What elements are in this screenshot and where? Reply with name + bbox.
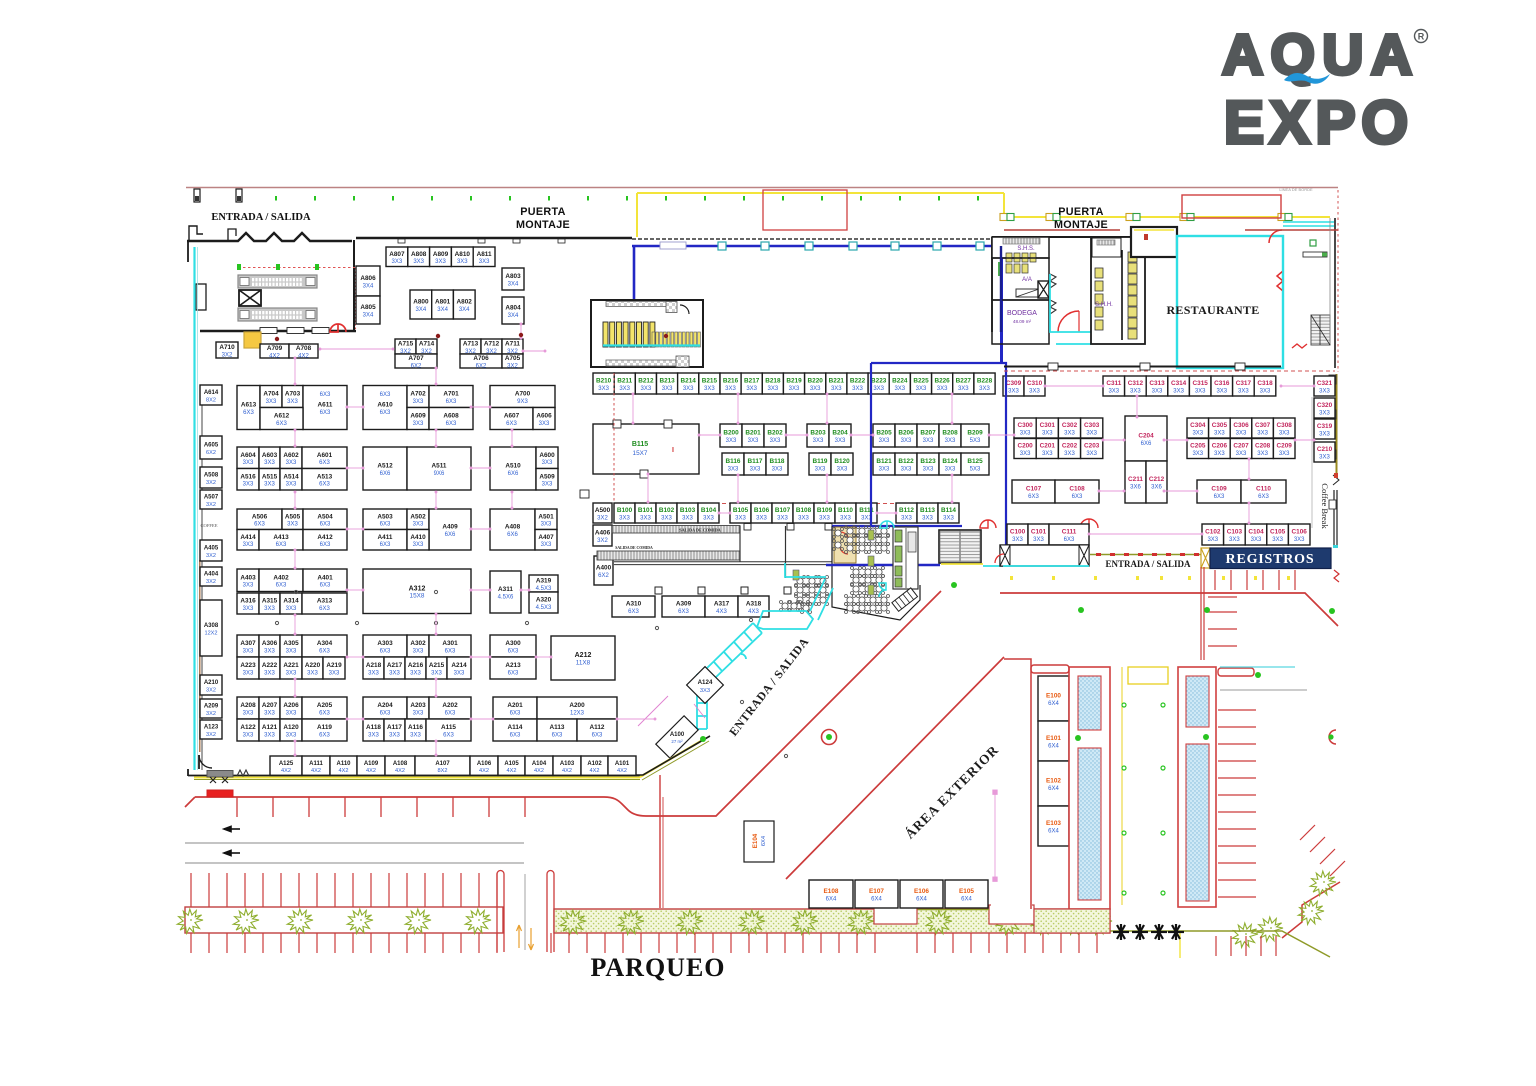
svg-text:C108: C108: [1069, 486, 1085, 493]
svg-text:15X8: 15X8: [410, 593, 425, 600]
svg-text:6X3: 6X3: [592, 732, 603, 738]
svg-text:3X3: 3X3: [852, 386, 863, 392]
svg-text:A209: A209: [204, 704, 219, 710]
svg-text:A601: A601: [317, 452, 333, 459]
svg-text:A206: A206: [283, 702, 299, 709]
svg-text:4.5X3: 4.5X3: [536, 586, 552, 592]
svg-text:3X3: 3X3: [815, 466, 826, 472]
svg-text:3X3: 3X3: [1130, 388, 1141, 394]
svg-text:B216: B216: [723, 378, 739, 385]
svg-text:A507: A507: [204, 495, 219, 501]
svg-text:A707: A707: [408, 355, 424, 362]
svg-text:6X3: 6X3: [552, 732, 563, 738]
svg-text:6X4: 6X4: [916, 896, 927, 902]
svg-text:A614: A614: [204, 390, 219, 396]
svg-text:3X3: 3X3: [368, 670, 379, 676]
svg-text:3X3: 3X3: [750, 466, 761, 472]
svg-text:A613: A613: [241, 402, 257, 409]
svg-text:B204: B204: [832, 430, 848, 437]
svg-text:3X3: 3X3: [1086, 451, 1097, 457]
svg-text:6X6: 6X6: [445, 532, 456, 538]
svg-text:A125: A125: [279, 761, 294, 767]
svg-text:27 m²: 27 m²: [671, 739, 683, 744]
svg-text:B106: B106: [754, 507, 770, 514]
svg-text:E102: E102: [1046, 778, 1061, 785]
svg-text:8X2: 8X2: [438, 768, 448, 774]
svg-text:PARQUEO: PARQUEO: [590, 953, 725, 982]
svg-text:B118: B118: [770, 458, 785, 465]
svg-text:A713: A713: [463, 341, 479, 348]
svg-text:A316: A316: [240, 598, 256, 605]
svg-text:A306: A306: [262, 640, 278, 647]
svg-text:6X3: 6X3: [319, 648, 330, 654]
svg-text:B114: B114: [941, 507, 956, 514]
svg-text:C200: C200: [1017, 443, 1033, 450]
svg-text:C304: C304: [1190, 422, 1206, 429]
svg-text:6X3: 6X3: [276, 583, 287, 589]
svg-text:B115: B115: [632, 441, 648, 448]
svg-text:A407: A407: [538, 534, 554, 541]
svg-text:3X3: 3X3: [410, 732, 421, 738]
svg-text:3X3: 3X3: [728, 466, 739, 472]
svg-text:3X3: 3X3: [879, 466, 890, 472]
svg-text:A501: A501: [538, 514, 554, 521]
svg-text:C310: C310: [1027, 380, 1043, 387]
svg-text:SALIDA DE COMIDA: SALIDA DE COMIDA: [615, 546, 653, 550]
svg-text:3X3: 3X3: [945, 438, 956, 444]
svg-text:3X3: 3X3: [943, 515, 954, 521]
svg-text:A508: A508: [204, 473, 219, 479]
svg-text:A102: A102: [587, 761, 602, 767]
svg-text:A301: A301: [442, 640, 458, 647]
svg-text:A703: A703: [285, 391, 301, 398]
svg-text:5X3: 5X3: [970, 466, 981, 472]
svg-text:B124: B124: [942, 458, 958, 465]
svg-text:3X3: 3X3: [243, 710, 254, 716]
svg-text:6X3: 6X3: [276, 421, 287, 427]
svg-text:3X3: 3X3: [264, 732, 275, 738]
svg-text:A602: A602: [283, 452, 299, 459]
svg-text:A603: A603: [262, 452, 278, 459]
svg-text:3X3: 3X3: [1042, 451, 1053, 457]
svg-text:3X2: 3X2: [206, 711, 216, 717]
svg-text:B116: B116: [726, 458, 741, 465]
svg-text:3X3: 3X3: [813, 438, 824, 444]
svg-text:C312: C312: [1128, 380, 1144, 387]
svg-text:3X3: 3X3: [789, 386, 800, 392]
svg-text:12X3: 12X3: [570, 710, 585, 716]
svg-text:C110: C110: [1256, 486, 1271, 493]
svg-text:A221: A221: [283, 662, 299, 669]
svg-text:6X3: 6X3: [446, 399, 457, 405]
svg-text:B200: B200: [723, 430, 739, 437]
svg-text:6X3: 6X3: [380, 392, 391, 398]
svg-text:B100: B100: [617, 507, 633, 514]
svg-text:B202: B202: [767, 430, 783, 437]
svg-text:3X3: 3X3: [1195, 388, 1206, 394]
svg-text:C207: C207: [1233, 443, 1249, 450]
svg-text:C302: C302: [1062, 422, 1078, 429]
svg-text:3X3: 3X3: [1192, 451, 1203, 457]
svg-text:A808: A808: [411, 251, 427, 258]
svg-text:A807: A807: [389, 251, 405, 258]
svg-text:C203: C203: [1084, 443, 1100, 450]
svg-text:A107: A107: [435, 761, 450, 767]
svg-text:A124: A124: [698, 679, 713, 686]
svg-text:6X4: 6X4: [761, 835, 767, 846]
svg-text:A205: A205: [317, 702, 333, 709]
svg-text:4.5X6: 4.5X6: [498, 594, 514, 600]
svg-text:B101: B101: [638, 507, 654, 514]
svg-text:A802: A802: [457, 299, 473, 306]
svg-text:6X3: 6X3: [508, 670, 519, 676]
svg-text:3X3: 3X3: [541, 522, 552, 528]
svg-text:A705: A705: [505, 355, 521, 362]
svg-text:3X3: 3X3: [1029, 388, 1040, 394]
svg-text:3X3: 3X3: [413, 542, 424, 548]
svg-text:A513: A513: [317, 473, 333, 480]
svg-text:3X3: 3X3: [264, 670, 275, 676]
svg-text:A413: A413: [273, 534, 289, 541]
svg-text:A704: A704: [263, 391, 279, 398]
svg-text:8X2: 8X2: [206, 397, 216, 403]
svg-text:A509: A509: [539, 473, 555, 480]
svg-text:C319: C319: [1317, 423, 1333, 430]
svg-text:A811: A811: [477, 251, 492, 258]
svg-text:3X3: 3X3: [1152, 388, 1163, 394]
svg-text:6X3: 6X3: [380, 410, 391, 416]
svg-text:3X3: 3X3: [772, 466, 783, 472]
svg-text:A606: A606: [536, 413, 552, 420]
svg-text:B109: B109: [817, 507, 833, 514]
svg-text:6X4: 6X4: [1048, 786, 1059, 792]
svg-text:4.5X3: 4.5X3: [536, 605, 552, 611]
svg-text:3X3: 3X3: [243, 583, 254, 589]
svg-text:B120: B120: [834, 458, 850, 465]
svg-text:3X3: 3X3: [1236, 430, 1247, 436]
svg-text:3X3: 3X3: [945, 466, 956, 472]
svg-text:A220: A220: [305, 662, 321, 669]
svg-text:A506: A506: [252, 514, 268, 521]
svg-text:3X3: 3X3: [243, 648, 254, 654]
svg-text:A203: A203: [410, 702, 426, 709]
svg-text:B220: B220: [808, 378, 824, 385]
svg-text:A213: A213: [505, 662, 521, 669]
svg-text:6X3: 6X3: [445, 648, 456, 654]
svg-text:A214: A214: [451, 662, 467, 669]
svg-text:A514: A514: [283, 473, 299, 480]
svg-text:C316: C316: [1214, 380, 1230, 387]
svg-text:6X4: 6X4: [1048, 701, 1059, 707]
svg-text:3X3: 3X3: [286, 732, 297, 738]
svg-text:3X3: 3X3: [431, 670, 442, 676]
svg-text:3X3: 3X3: [768, 386, 779, 392]
svg-text:A317: A317: [714, 601, 730, 608]
svg-text:A706: A706: [473, 355, 489, 362]
svg-text:3X3: 3X3: [746, 386, 757, 392]
svg-text:6X3: 6X3: [445, 710, 456, 716]
svg-text:3X3: 3X3: [798, 515, 809, 521]
svg-text:3X3: 3X3: [413, 421, 424, 427]
svg-text:B215: B215: [702, 378, 718, 385]
svg-text:3X3: 3X3: [542, 460, 553, 466]
svg-text:3X3: 3X3: [1272, 537, 1283, 543]
svg-text:3X3: 3X3: [661, 515, 672, 521]
svg-text:3X3: 3X3: [1319, 410, 1330, 416]
svg-text:3X3: 3X3: [901, 466, 912, 472]
svg-text:A218: A218: [366, 662, 382, 669]
svg-text:C313: C313: [1149, 380, 1165, 387]
svg-text:B102: B102: [659, 507, 675, 514]
svg-text:C309: C309: [1006, 380, 1022, 387]
svg-text:A605: A605: [204, 443, 219, 449]
svg-text:3X3: 3X3: [958, 386, 969, 392]
svg-text:3X3: 3X3: [1207, 537, 1218, 543]
svg-text:A404: A404: [204, 572, 219, 578]
svg-text:C103: C103: [1227, 529, 1243, 536]
svg-text:A503: A503: [377, 514, 393, 521]
svg-text:6X3: 6X3: [319, 710, 330, 716]
svg-text:A414: A414: [240, 534, 256, 541]
svg-text:A803: A803: [505, 273, 521, 280]
svg-text:A715: A715: [398, 341, 414, 348]
svg-text:3X3: 3X3: [243, 460, 254, 466]
svg-text:C106: C106: [1292, 529, 1308, 536]
svg-text:12X2: 12X2: [204, 630, 217, 636]
svg-text:3X4: 3X4: [508, 281, 519, 287]
svg-text:B110: B110: [838, 507, 853, 514]
svg-text:4X2: 4X2: [339, 768, 349, 774]
svg-text:6X3: 6X3: [320, 583, 331, 589]
svg-text:E107: E107: [869, 888, 884, 895]
svg-text:B107: B107: [775, 507, 791, 514]
svg-text:C201: C201: [1040, 443, 1056, 450]
svg-text:4X3: 4X3: [748, 609, 759, 615]
svg-text:B117: B117: [748, 458, 763, 465]
svg-text:A312: A312: [409, 586, 426, 593]
svg-text:9X3: 9X3: [517, 399, 528, 405]
svg-text:3X3: 3X3: [1086, 430, 1097, 436]
svg-text:C318: C318: [1257, 380, 1273, 387]
svg-text:3X2: 3X2: [206, 553, 216, 559]
svg-text:3X3: 3X3: [1238, 388, 1249, 394]
svg-text:11X8: 11X8: [576, 659, 591, 666]
svg-text:BODEGA: BODEGA: [1007, 310, 1037, 317]
svg-text:3X3: 3X3: [264, 460, 275, 466]
svg-text:6X3: 6X3: [320, 522, 331, 528]
svg-text:6X2: 6X2: [598, 573, 609, 579]
svg-text:C315: C315: [1193, 380, 1209, 387]
svg-text:3X3: 3X3: [1012, 537, 1023, 543]
svg-text:C212: C212: [1149, 476, 1165, 483]
svg-text:A710: A710: [219, 344, 235, 351]
svg-text:C321: C321: [1317, 380, 1333, 387]
svg-text:A504: A504: [317, 514, 333, 521]
svg-text:A222: A222: [262, 662, 278, 669]
svg-text:6X3: 6X3: [319, 460, 330, 466]
svg-text:A505: A505: [285, 514, 301, 521]
svg-text:4X2: 4X2: [298, 353, 309, 359]
svg-text:B224: B224: [892, 378, 908, 385]
svg-text:A313: A313: [317, 598, 333, 605]
svg-text:A122: A122: [240, 724, 256, 731]
svg-text:3X3: 3X3: [979, 386, 990, 392]
svg-text:3X3: 3X3: [810, 386, 821, 392]
svg-text:3X3: 3X3: [243, 482, 254, 488]
svg-text:A309: A309: [676, 601, 692, 608]
svg-text:A700: A700: [515, 391, 531, 398]
svg-text:A305: A305: [283, 640, 299, 647]
svg-text:A702: A702: [410, 391, 426, 398]
svg-text:6X3: 6X3: [380, 648, 391, 654]
svg-text:6X3: 6X3: [276, 542, 287, 548]
svg-text:B206: B206: [898, 430, 914, 437]
svg-text:A117: A117: [387, 724, 402, 731]
svg-text:3X3: 3X3: [703, 515, 714, 521]
svg-text:ENTRADA / SALIDA: ENTRADA / SALIDA: [1105, 559, 1191, 569]
svg-text:3X3: 3X3: [1214, 430, 1225, 436]
svg-text:MONTAJE: MONTAJE: [1054, 219, 1108, 231]
svg-text:A609: A609: [410, 413, 426, 420]
svg-text:C314: C314: [1171, 380, 1187, 387]
svg-text:A308: A308: [204, 623, 219, 629]
svg-text:C301: C301: [1040, 422, 1056, 429]
svg-text:B218: B218: [765, 378, 781, 385]
svg-text:3X6: 3X6: [1151, 484, 1162, 490]
svg-text:3X3: 3X3: [243, 606, 254, 612]
svg-text:3X3: 3X3: [901, 515, 912, 521]
svg-text:3X3: 3X3: [389, 670, 400, 676]
svg-text:A113: A113: [550, 724, 565, 731]
svg-text:RESTAURANTE: RESTAURANTE: [1166, 303, 1259, 317]
svg-text:C305: C305: [1212, 422, 1228, 429]
svg-text:Coffee Break: Coffee Break: [1320, 483, 1330, 529]
svg-text:3X4: 3X4: [363, 283, 374, 289]
svg-text:A304: A304: [317, 640, 333, 647]
svg-text:3X3: 3X3: [1319, 454, 1330, 460]
svg-text:3X3: 3X3: [726, 438, 737, 444]
svg-text:MONTAJE: MONTAJE: [516, 219, 570, 231]
svg-text:C307: C307: [1255, 422, 1271, 429]
svg-text:A512: A512: [377, 463, 393, 470]
svg-text:A805: A805: [360, 304, 376, 311]
svg-text:A302: A302: [410, 640, 426, 647]
svg-text:A208: A208: [240, 702, 256, 709]
svg-text:A123: A123: [204, 725, 219, 731]
svg-text:PUERTA: PUERTA: [1058, 206, 1103, 218]
svg-text:A100: A100: [670, 732, 685, 738]
svg-text:B112: B112: [899, 507, 914, 514]
svg-text:B214: B214: [681, 378, 697, 385]
svg-text:C105: C105: [1270, 529, 1286, 536]
svg-text:3X3: 3X3: [873, 386, 884, 392]
svg-text:A114: A114: [508, 724, 523, 731]
svg-text:A120: A120: [283, 724, 299, 731]
svg-text:3X3: 3X3: [835, 438, 846, 444]
svg-text:6X2: 6X2: [411, 363, 422, 369]
svg-text:3X3: 3X3: [840, 515, 851, 521]
svg-text:6X3: 6X3: [1064, 537, 1075, 543]
svg-text:C210: C210: [1317, 446, 1333, 453]
svg-text:3X3: 3X3: [264, 482, 275, 488]
svg-text:I: I: [672, 447, 674, 454]
svg-text:C107: C107: [1026, 486, 1042, 493]
svg-text:B227: B227: [956, 378, 972, 385]
svg-text:A109: A109: [364, 761, 379, 767]
svg-text:A402: A402: [273, 575, 289, 582]
svg-text:3X3: 3X3: [1064, 451, 1075, 457]
svg-text:3X3: 3X3: [1236, 451, 1247, 457]
svg-text:A701: A701: [443, 391, 459, 398]
svg-text:48.09 m²: 48.09 m²: [1013, 319, 1032, 324]
svg-text:A810: A810: [455, 251, 471, 258]
svg-text:3X3: 3X3: [389, 732, 400, 738]
svg-text:B122: B122: [898, 458, 914, 465]
svg-text:3X3: 3X3: [819, 515, 830, 521]
svg-text:3X2: 3X2: [206, 579, 216, 585]
svg-text:6X3: 6X3: [319, 482, 330, 488]
svg-text:3X3: 3X3: [1108, 388, 1119, 394]
svg-text:A712: A712: [484, 341, 500, 348]
svg-text:6X6: 6X6: [1141, 441, 1152, 447]
svg-text:6X2: 6X2: [476, 363, 487, 369]
svg-text:B226: B226: [934, 378, 950, 385]
svg-text:3X3: 3X3: [243, 670, 254, 676]
svg-text:3X2: 3X2: [206, 480, 216, 486]
svg-text:A515: A515: [262, 473, 278, 480]
svg-text:3X4: 3X4: [437, 307, 448, 313]
svg-text:C206: C206: [1212, 443, 1228, 450]
svg-text:6X3: 6X3: [320, 392, 331, 398]
svg-text:B217: B217: [744, 378, 760, 385]
svg-text:PUERTA: PUERTA: [520, 206, 565, 218]
svg-text:3X3: 3X3: [777, 515, 788, 521]
svg-text:3X3: 3X3: [725, 386, 736, 392]
svg-text:C303: C303: [1084, 422, 1100, 429]
svg-text:A104: A104: [532, 761, 547, 767]
svg-text:B125: B125: [967, 458, 983, 465]
svg-text:E106: E106: [914, 888, 929, 895]
svg-text:A315: A315: [262, 598, 278, 605]
svg-text:B103: B103: [680, 507, 696, 514]
svg-text:A412: A412: [317, 534, 333, 541]
svg-text:6X3: 6X3: [443, 732, 454, 738]
svg-text:6X3: 6X3: [446, 421, 457, 427]
svg-text:3X3: 3X3: [922, 515, 933, 521]
svg-text:4X2: 4X2: [562, 768, 572, 774]
svg-text:6X6: 6X6: [507, 532, 518, 538]
svg-text:4X2: 4X2: [311, 768, 321, 774]
svg-text:3X3: 3X3: [937, 386, 948, 392]
svg-text:3X3: 3X3: [1042, 430, 1053, 436]
svg-text:A/A: A/A: [1022, 277, 1032, 283]
svg-text:3X4: 3X4: [416, 307, 427, 313]
svg-text:B119: B119: [813, 458, 828, 465]
svg-text:B201: B201: [745, 430, 761, 437]
svg-text:A118: A118: [366, 724, 381, 731]
svg-text:SALIDA DE COMIDA: SALIDA DE COMIDA: [679, 528, 720, 533]
svg-text:6X3: 6X3: [1258, 494, 1269, 500]
svg-text:3X3: 3X3: [264, 710, 275, 716]
svg-text:A119: A119: [317, 724, 332, 731]
svg-text:A116: A116: [408, 724, 423, 731]
svg-text:3X3: 3X3: [539, 421, 550, 427]
svg-text:5X3: 5X3: [970, 438, 981, 444]
svg-text:A711: A711: [505, 341, 520, 348]
svg-text:3X3: 3X3: [894, 386, 905, 392]
svg-text:6X3: 6X3: [506, 421, 517, 427]
svg-text:3X2: 3X2: [206, 732, 216, 738]
